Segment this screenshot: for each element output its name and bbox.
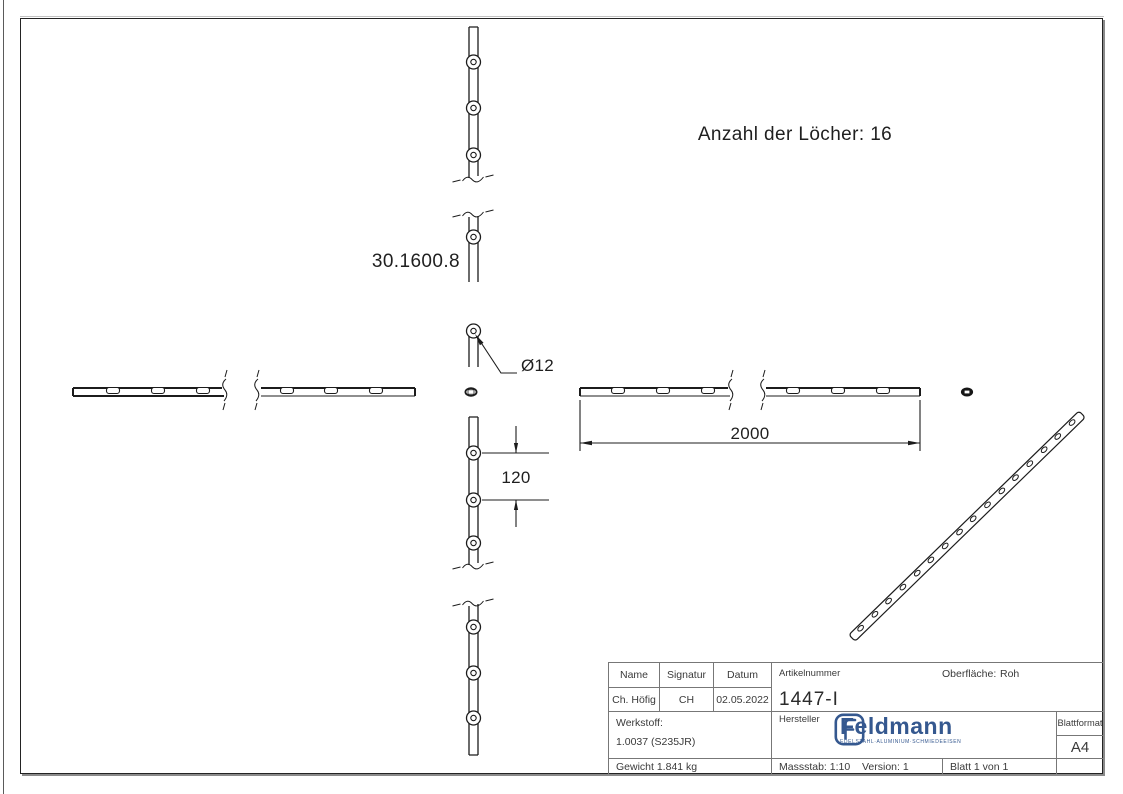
end-view-left [465, 388, 476, 396]
tb-header-signatur: Signatur [660, 662, 713, 687]
tb-gewicht: Gewicht 1.841 kg [616, 761, 697, 773]
titleblock-line [771, 662, 772, 774]
tb-hersteller-label: Hersteller [779, 714, 820, 725]
holes-count-note: Anzahl der Löcher: 16 [695, 124, 895, 146]
dim-2000-text: 2000 [710, 424, 790, 444]
tb-value-datum: 02.05.2022 [714, 688, 771, 711]
tb-header-datum: Datum [714, 662, 771, 687]
tb-massstab: Massstab: 1:10 [779, 761, 850, 773]
titleblock-line [942, 758, 943, 774]
dim-120-text: 120 [486, 468, 546, 488]
tb-version: Version: 1 [862, 761, 909, 773]
feldmann-logo-icon [834, 713, 865, 746]
front-view-right [580, 370, 920, 410]
tb-header-name: Name [609, 662, 659, 687]
front-view-left [73, 370, 415, 410]
tb-oberflaeche-label: Oberfläche: [942, 668, 996, 680]
tb-artikelnummer-label: Artikelnummer [779, 668, 840, 679]
part-code-label: 30.1600.8 [358, 251, 460, 273]
isometric-view [849, 411, 1085, 641]
tb-blattformat-label: Blattformat [1057, 711, 1103, 735]
drawing-sheet: Anzahl der Löcher: 16 30.1600.8 2000 120… [0, 0, 1123, 794]
dim-hole-dia-text: Ø12 [521, 356, 554, 376]
tb-value-signatur: CH [660, 688, 713, 711]
tb-artikelnummer-value: 1447-I [779, 689, 839, 711]
manufacturer-logo: Feldmann EDELSTAHL·ALUMINIUM·SCHMIEDEEIS… [834, 713, 961, 745]
end-view-right [961, 388, 972, 396]
tb-werkstoff-value: 1.0037 (S235JR) [616, 736, 695, 748]
tb-blattformat-value: A4 [1057, 736, 1103, 758]
dimension-hole-leader [475, 334, 517, 373]
titleblock-line [608, 711, 1103, 712]
titleblock-line [608, 758, 1103, 759]
tb-oberflaeche-value: Roh [1000, 668, 1019, 680]
tb-value-name: Ch. Höfig [609, 688, 659, 711]
tb-blatt: Blatt 1 von 1 [950, 761, 1008, 773]
tb-werkstoff-label: Werkstoff: [616, 717, 663, 729]
